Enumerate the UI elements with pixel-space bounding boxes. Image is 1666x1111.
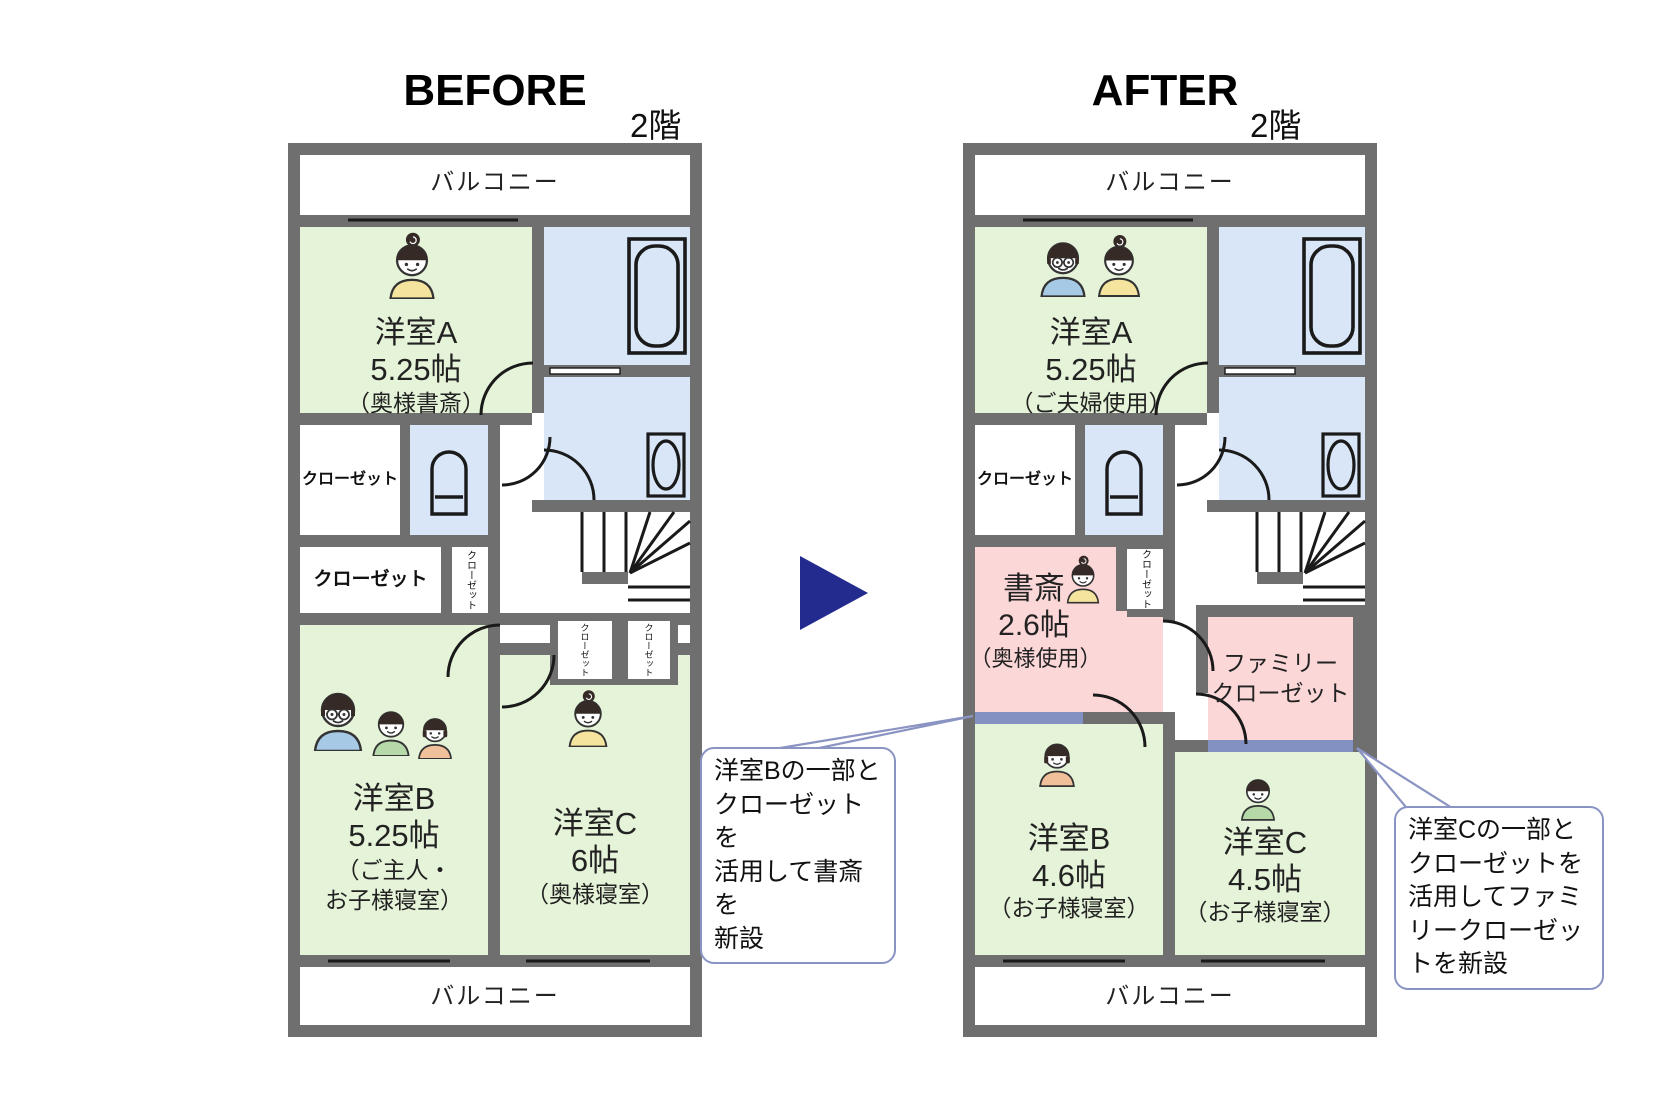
study-name: 書斎 xyxy=(969,571,1099,607)
callout-family-closet: 洋室Cの一部と クローゼットを 活用してファミ リークローゼッ トを新設 xyxy=(1394,806,1604,990)
before-after-arrow-icon xyxy=(800,556,868,630)
room-b-name: 洋室B xyxy=(975,821,1163,857)
renovation-comparison-diagram: BEFORE 2階 AFTER 2階 xyxy=(0,0,1666,1111)
room-c-note: （奥様寝室） xyxy=(500,881,690,907)
room-c-note: （お子様寝室） xyxy=(1165,899,1365,925)
room-b-size: 5.25帖 xyxy=(300,818,488,854)
room-c-name: 洋室C xyxy=(500,806,690,842)
room-a-name: 洋室A xyxy=(300,315,532,351)
study-size: 2.6帖 xyxy=(969,609,1099,644)
closet-hall-label: クローゼット xyxy=(1127,549,1163,609)
closet-hall-label: クローゼット xyxy=(452,547,488,613)
room-a-size: 5.25帖 xyxy=(975,352,1207,388)
after-floor-label: 2階 xyxy=(1250,99,1340,147)
closet-lower-label: クローゼット xyxy=(300,569,441,591)
room-a-name: 洋室A xyxy=(975,315,1207,351)
before-title: BEFORE xyxy=(370,66,620,116)
room-a-note: （奥様書斎） xyxy=(300,390,532,416)
before-floorplan: バルコニー 洋室A 5.25帖 （奥様書斎） クローゼット クローゼット クロー… xyxy=(288,143,702,1037)
room-c-size: 6帖 xyxy=(500,843,690,879)
closet-c1-label: クローゼット xyxy=(558,621,612,679)
balcony-bottom-label: バルコニー xyxy=(300,983,690,1011)
after-stairs xyxy=(1257,512,1365,600)
room-b-note: （ご主人・ お子様寝室） xyxy=(300,856,488,916)
callout-study: 洋室Bの一部と クローゼットを 活用して書斎を 新設 xyxy=(700,747,896,964)
closet-upper-label: クローゼット xyxy=(300,471,400,489)
room-a-note: （ご夫婦使用） xyxy=(975,390,1207,416)
window xyxy=(550,368,620,374)
room-b-name: 洋室B xyxy=(300,781,488,817)
room-c-size: 4.5帖 xyxy=(1175,862,1355,898)
balcony-top-label: バルコニー xyxy=(975,169,1365,197)
closet-c2-label: クローゼット xyxy=(628,621,670,679)
before-floor-label: 2階 xyxy=(630,99,720,147)
after-floorplan: バルコニー 洋室A 5.25帖 （ご夫婦使用） クローゼット クローゼット 書斎… xyxy=(963,143,1377,1037)
closet-upper-label: クローゼット xyxy=(975,471,1075,489)
room-b-note: （お子様寝室） xyxy=(963,895,1175,921)
room-a-size: 5.25帖 xyxy=(300,352,532,388)
room-c-name: 洋室C xyxy=(1175,825,1355,861)
balcony-bottom-label: バルコニー xyxy=(975,983,1365,1011)
window xyxy=(1225,368,1295,374)
balcony-top-label: バルコニー xyxy=(300,169,690,197)
before-stairs xyxy=(582,512,690,600)
study-note: （奥様使用） xyxy=(963,646,1108,671)
room-b-size: 4.6帖 xyxy=(975,858,1163,894)
family-closet-label: ファミリー クローゼット xyxy=(1208,649,1353,709)
